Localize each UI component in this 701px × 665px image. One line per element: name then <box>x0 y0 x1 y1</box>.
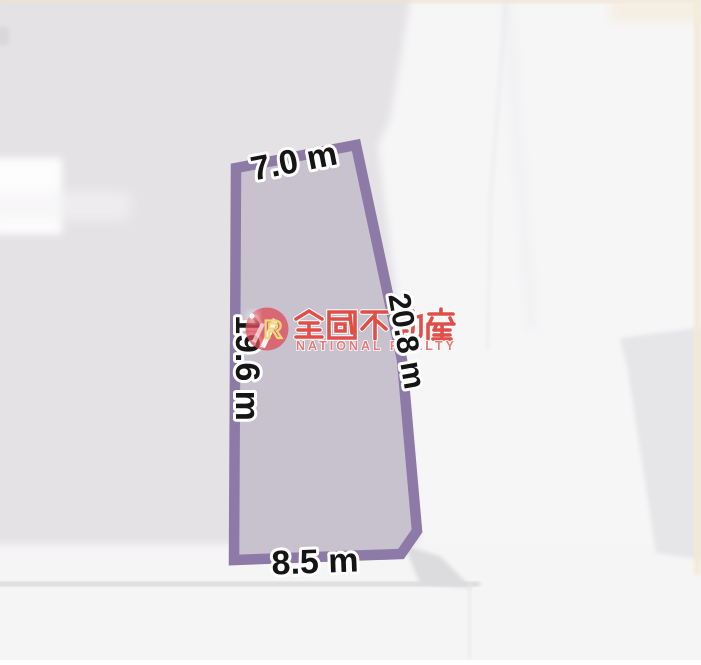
svg-text:8.5 m: 8.5 m <box>271 541 359 582</box>
svg-text:NATIONAL REALTY: NATIONAL REALTY <box>296 339 457 353</box>
svg-text:R: R <box>264 316 282 344</box>
